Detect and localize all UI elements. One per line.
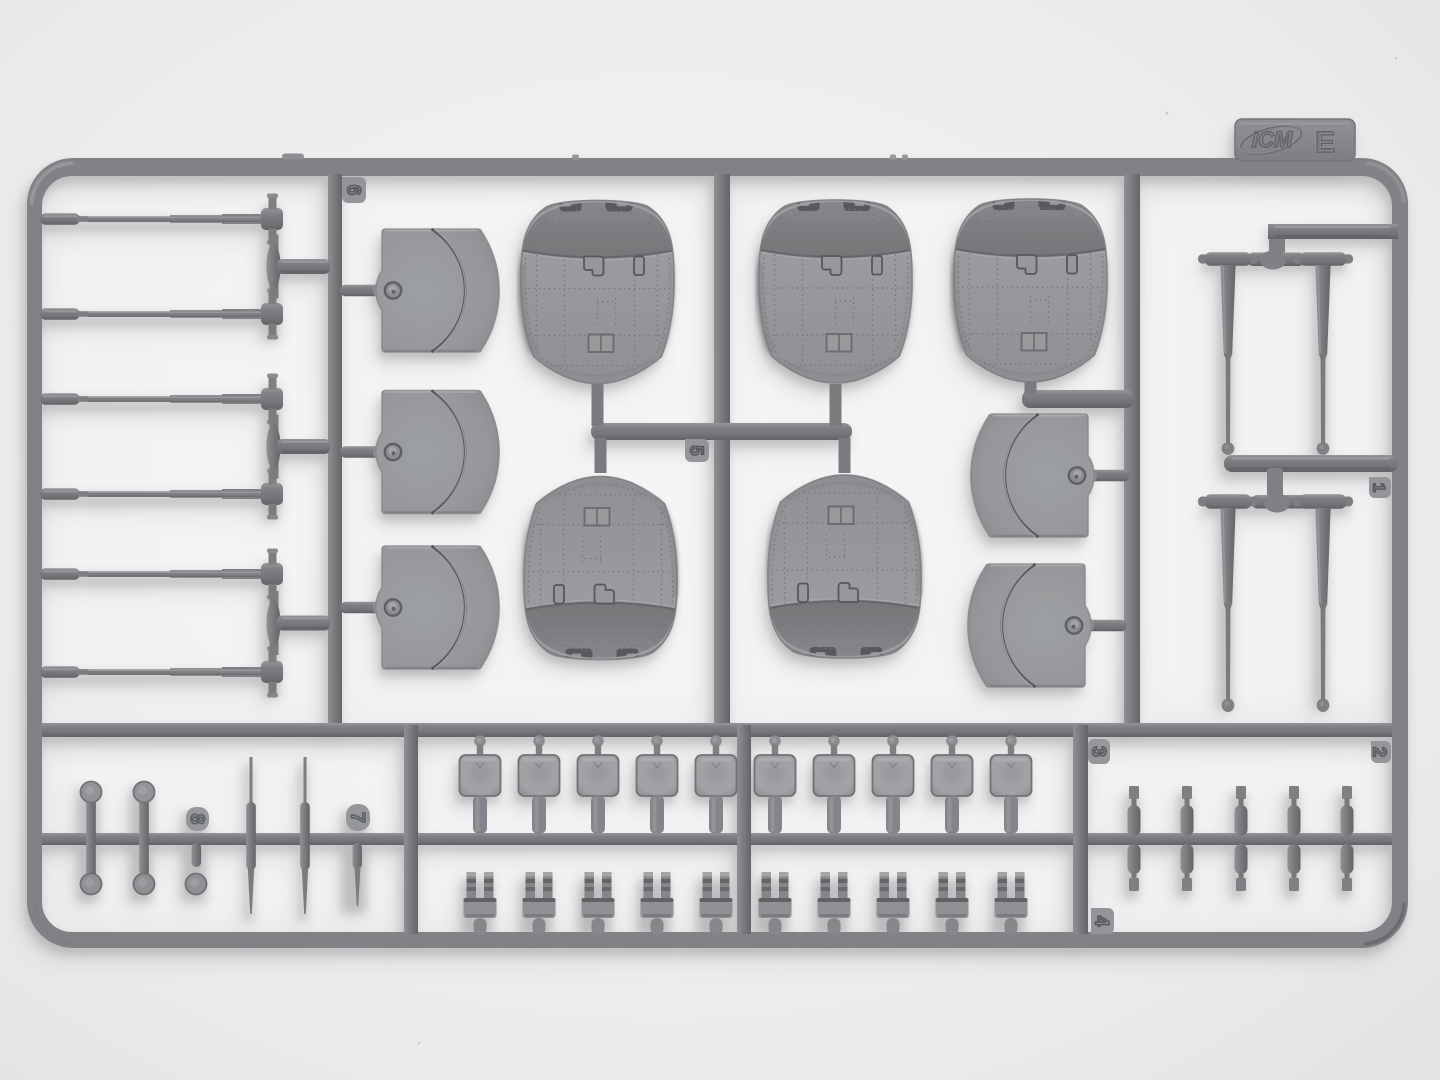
svg-text:4: 4 — [1091, 916, 1112, 927]
svg-text:7: 7 — [347, 812, 368, 823]
svg-text:8: 8 — [186, 814, 207, 825]
svg-text:2: 2 — [1370, 747, 1390, 757]
svg-text:ICM: ICM — [1252, 127, 1293, 152]
svg-text:E: E — [1314, 125, 1334, 158]
svg-text:5: 5 — [687, 445, 707, 455]
svg-text:6: 6 — [343, 185, 364, 196]
svg-text:1: 1 — [1370, 483, 1389, 492]
svg-text:3: 3 — [1088, 746, 1109, 757]
